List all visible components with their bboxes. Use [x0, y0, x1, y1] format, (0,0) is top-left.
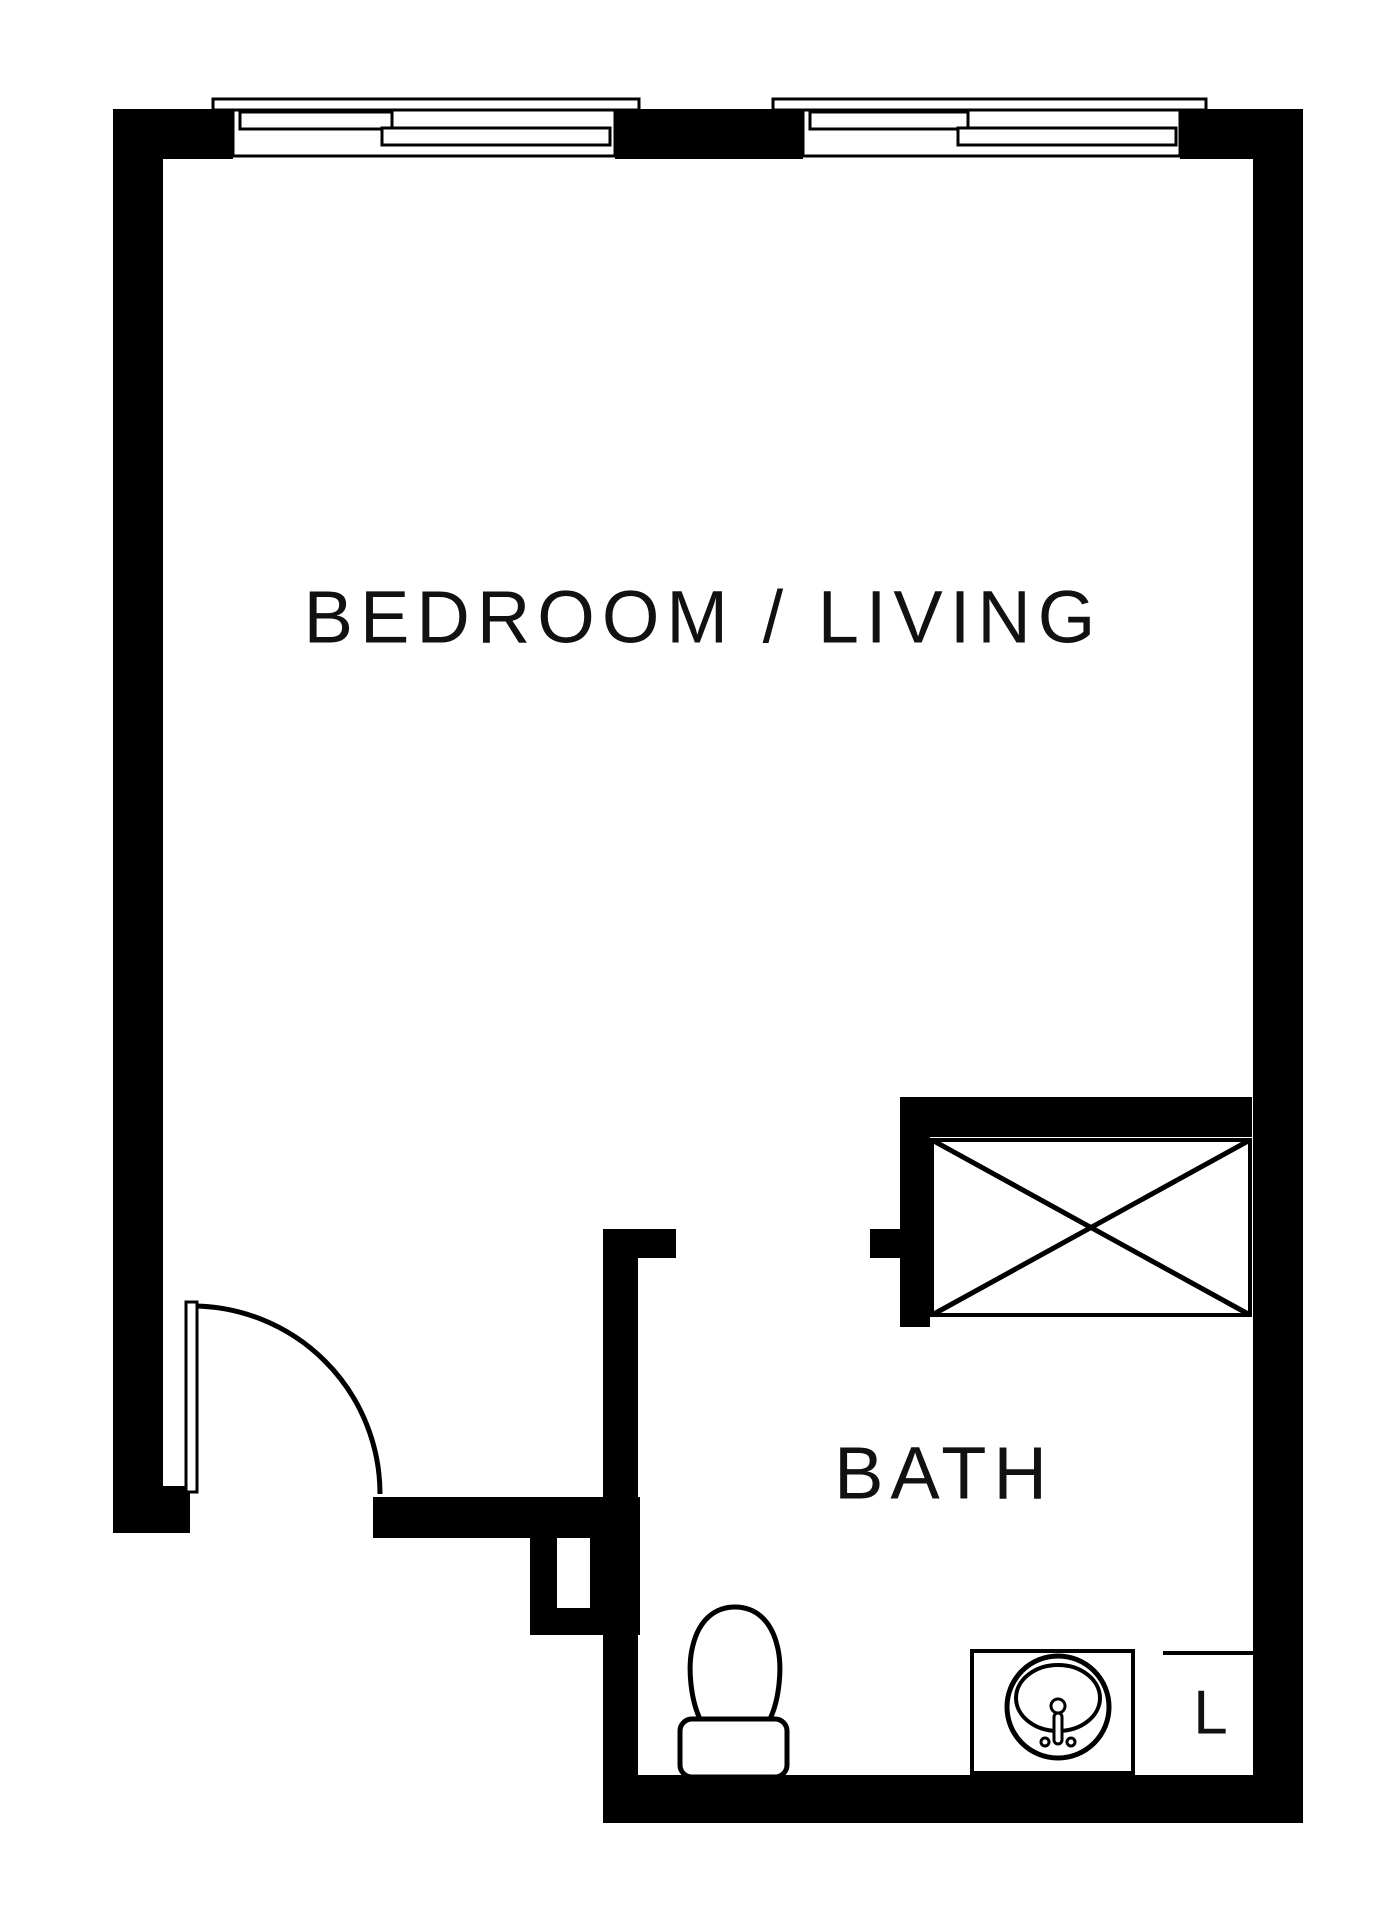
- linen-label: L: [1193, 1678, 1228, 1749]
- floor-plan: BEDROOM / LIVING BATH L: [0, 0, 1379, 1920]
- bedroom-living-label: BEDROOM / LIVING: [304, 575, 1103, 660]
- bath-label: BATH: [834, 1431, 1054, 1516]
- sink-icon: [972, 1651, 1133, 1773]
- window-icon: [213, 99, 639, 156]
- toilet-icon: [680, 1607, 787, 1777]
- window-icon: [773, 99, 1206, 156]
- fixtures-layer: [0, 0, 1379, 1920]
- entry-door-icon: [186, 1302, 380, 1494]
- closet-icon: [932, 1140, 1250, 1315]
